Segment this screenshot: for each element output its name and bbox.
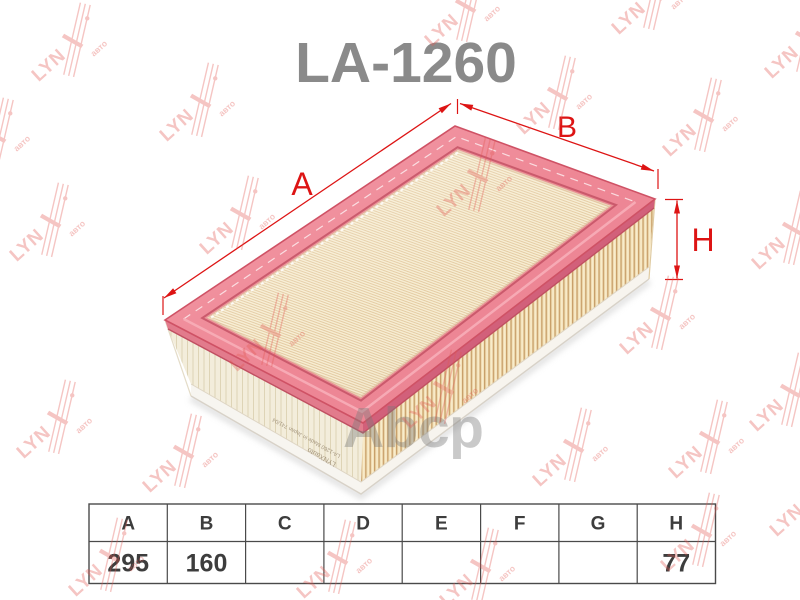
svg-text:G: G: [591, 514, 606, 535]
svg-text:A: A: [291, 166, 313, 202]
svg-text:B: B: [557, 111, 577, 144]
svg-text:E: E: [435, 514, 448, 535]
svg-text:H: H: [691, 222, 714, 258]
svg-text:C: C: [278, 514, 292, 535]
svg-text:F: F: [514, 514, 526, 535]
svg-text:B: B: [200, 514, 214, 535]
svg-text:D: D: [356, 514, 370, 535]
svg-text:LA-1260: LA-1260: [295, 31, 517, 95]
svg-text:160: 160: [186, 550, 228, 578]
svg-text:H: H: [669, 514, 683, 535]
